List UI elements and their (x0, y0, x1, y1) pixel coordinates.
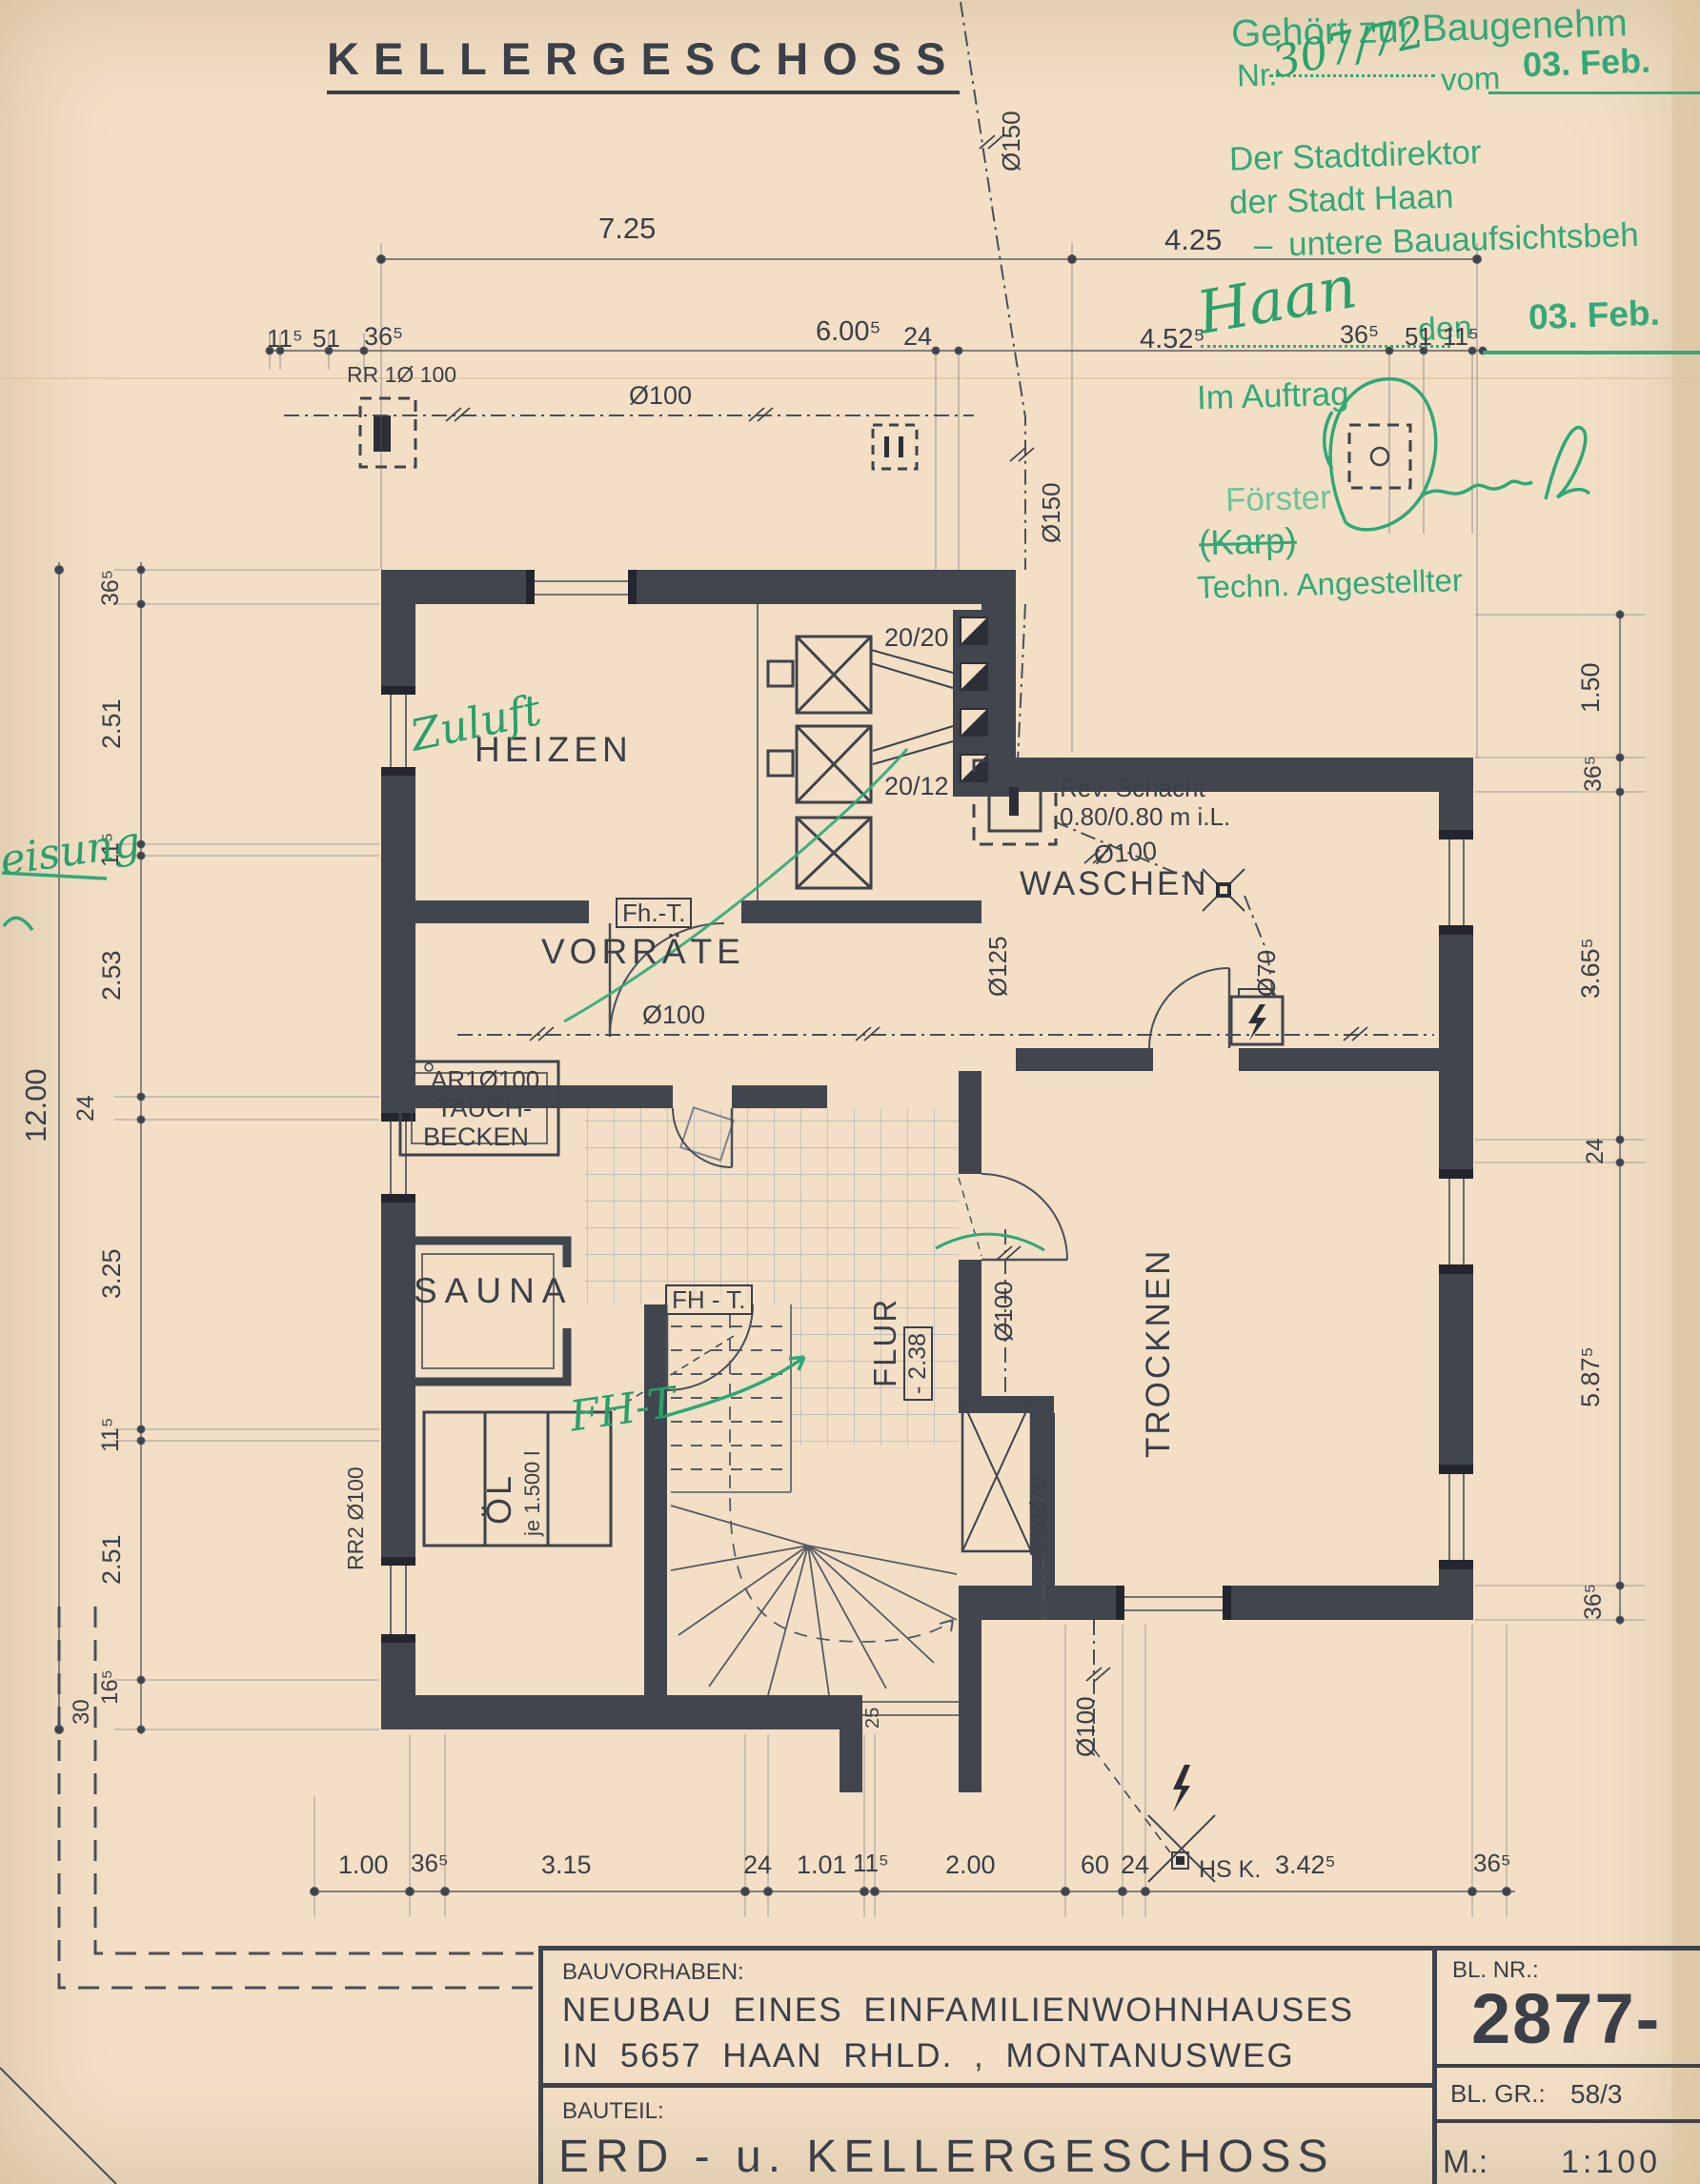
label-d150-top: Ø150 (999, 111, 1023, 172)
label-d150-mid: Ø150 (1039, 482, 1063, 543)
page-title: KELLERGESCHOSS (327, 36, 960, 94)
door-waschen (1149, 968, 1229, 1048)
stamp-authority1: Der Stadtdirektor (1229, 135, 1482, 175)
stamp-date2-underline (1483, 351, 1700, 354)
hsk-symbol (1094, 1749, 1215, 1882)
signature (1325, 379, 1589, 530)
dim-left-0: 36⁵ (99, 570, 123, 606)
flur-level-badge: - 2.38 (903, 1326, 933, 1401)
dim-top2-5: 4.52⁵ (1140, 326, 1204, 354)
dim-left-9: 30 (71, 1699, 93, 1725)
mid-dashed-box (873, 425, 917, 469)
room-label-sauna: SAUNA (414, 1273, 573, 1308)
dim-top2-8: 11⁵ (1443, 324, 1479, 349)
titleblock-border-left (538, 1946, 543, 2184)
dim-left-7: 2.51 (99, 1534, 125, 1585)
dim-bottom-9: 3.42⁵ (1275, 1852, 1336, 1878)
dim-right-1: 36⁵ (1582, 756, 1606, 792)
stamp-name: Förster (1225, 480, 1332, 516)
dim-top2-2: 36⁵ (364, 324, 403, 350)
titleblock-bauvorhaben-label: BAUVORHABEN: (562, 1961, 744, 1984)
label-rr2: RR2 Ø100 (345, 1466, 367, 1570)
dim-bottom-2: 3.15 (541, 1852, 592, 1878)
flue-2 (961, 663, 987, 690)
window-right-2 (1439, 1169, 1473, 1274)
dim-top2-3: 6.00⁵ (816, 318, 880, 346)
dim-right-3: 24 (1584, 1138, 1608, 1164)
label-d100-top: Ø100 (629, 383, 692, 409)
label-25: 25 (863, 1708, 882, 1729)
dim-bottom-8: 24 (1121, 1852, 1149, 1878)
room-label-trocknen: TROCKNEN (1142, 1248, 1175, 1458)
dim-top2-0: 11⁵ (267, 326, 303, 351)
stamp-vom: vom (1441, 62, 1501, 95)
titleblock-blgr-value: 58/3 (1570, 2081, 1623, 2108)
room-label-oel: ÖL (482, 1473, 516, 1525)
titleblock-blnr-value: 2877- (1471, 1984, 1661, 2054)
dim-left-5: 3.25 (99, 1248, 125, 1299)
stamp-name-struck: (Karp) (1199, 523, 1298, 561)
oil-tanks (424, 1336, 734, 1546)
room-label-vorraete: VORRÄTE (541, 934, 745, 969)
dim-bottom-10: 36⁵ (1473, 1850, 1511, 1875)
room-label-flur: FLUR (869, 1298, 901, 1387)
window-left-2 (381, 1113, 415, 1203)
titleblock-scale-label: M.: (1443, 2146, 1487, 2178)
titleblock-project-line1: NEUBAU EINES EINFAMILIENWOHNHAUSES (562, 1993, 1354, 2027)
titleblock-project-line2: IN 5657 HAAN RHLD. , MONTANUSWEG (562, 2039, 1295, 2073)
door-trocknen (959, 1174, 1067, 1260)
dim-right-5: 36⁵ (1582, 1584, 1606, 1620)
label-d100-bottom: Ø100 (1073, 1696, 1098, 1757)
dim-top2-6: 36⁵ (1340, 322, 1379, 348)
door-label-fht-2: FH - T. (665, 1284, 753, 1315)
dim-top2-1: 51 (313, 326, 340, 351)
dim-bottom-7: 60 (1081, 1852, 1109, 1878)
titleblock-bauteil-value: ERD - u. KELLERGESCHOSS (558, 2134, 1335, 2180)
stamp-nr-underline (1269, 74, 1435, 77)
label-d125: Ø125 (985, 936, 1010, 997)
dim-left-total: 12.00 (21, 1068, 51, 1143)
label-d100-stairs: Ø100 (991, 1281, 1016, 1342)
flue-3 (961, 709, 987, 736)
window-right-1 (1439, 830, 1473, 935)
dim-right-0: 1.50 (1578, 662, 1604, 713)
stamp-authority2: der Stadt Haan (1229, 180, 1454, 220)
rr1-dashed-box (360, 398, 415, 467)
titleblock-blgr-label: BL. GR.: (1450, 2081, 1546, 2106)
dim-right-2: 3.65⁵ (1578, 938, 1604, 999)
dim-right-4: 5.87⁵ (1578, 1346, 1604, 1407)
label-hsk: HS K. (1199, 1858, 1261, 1882)
label-rev-schacht-1: Rev. Schacht (1060, 776, 1205, 800)
right-dashed-box (1349, 425, 1410, 488)
lightning-icon (1173, 1765, 1190, 1812)
stamp-date1: 03. Feb. (1522, 44, 1650, 83)
dim-left-6: 11⁵ (99, 1418, 123, 1452)
titleblock-divider-right-1 (1432, 2064, 1700, 2068)
label-ar2: AR2Ø70 (1027, 1477, 1049, 1561)
excavation-dashed-lines (0, 1607, 534, 2184)
dim-top-725: 7.25 (598, 213, 656, 243)
dim-top2-7: 51 (1405, 324, 1432, 349)
flue-1 (961, 617, 987, 644)
blueprint-sheet: KELLERGESCHOSS Gehört zur Baugenehm Nr. … (0, 0, 1700, 2184)
titleblock-divider-left (538, 2083, 1432, 2088)
window-top (526, 570, 637, 604)
door-stairs (667, 1304, 753, 1390)
dim-top2-4: 24 (903, 324, 932, 350)
titleblock-border-top (538, 1946, 1700, 1951)
room-label-tauchbecken-1: TAUCH- (436, 1096, 532, 1122)
label-ar1: AR1Ø100 (431, 1067, 539, 1092)
shaft-cross (962, 1401, 1031, 1551)
washing-machine-symbol (1231, 989, 1283, 1044)
dimension-lines (55, 243, 1646, 1917)
label-flue-2020: 20/20 (884, 625, 949, 651)
corner-fold-line (0, 2068, 116, 2184)
sauna-walls (409, 1241, 572, 1382)
room-label-oel-sub: je 1.500 l (522, 1451, 543, 1536)
stamp-date2: 03. Feb. (1528, 295, 1660, 335)
window-right-3 (1439, 1465, 1473, 1569)
label-flue-2012: 20/12 (884, 774, 949, 799)
dim-left-8: 16⁵ (99, 1669, 122, 1705)
titleblock-bauteil-label: BAUTEIL: (562, 2100, 664, 2123)
titleblock-scale-value: 1:100 (1561, 2146, 1661, 2178)
label-rr1: RR 1Ø 100 (347, 364, 456, 386)
stamp-dash: – (1254, 229, 1272, 262)
dim-bottom-5: 11⁵ (853, 1850, 889, 1875)
label-d100-vorraete: Ø100 (642, 1002, 705, 1028)
stamp-role: Techn. Angestellter (1197, 564, 1464, 603)
dim-left-1: 2.51 (99, 698, 125, 749)
dim-bottom-6: 2.00 (945, 1852, 996, 1878)
dim-left-4: 24 (74, 1095, 98, 1122)
window-bottom-right (1116, 1586, 1231, 1620)
stamp-date1-underline (1488, 91, 1700, 94)
dim-bottom-0: 1.00 (338, 1852, 389, 1878)
room-label-tauchbecken-2: BECKEN (423, 1124, 529, 1150)
label-d100-waschen: Ø100 (1093, 839, 1158, 869)
label-d70: Ø70 (1254, 950, 1279, 997)
label-rev-schacht-2: 0.80/0.80 m i.L. (1060, 804, 1230, 829)
stamp-im-auftrag: Im Auftrag (1197, 377, 1349, 415)
dim-top-425: 4.25 (1164, 225, 1222, 254)
dim-bottom-4: 1.01 (797, 1852, 847, 1878)
dim-left-3: 2.53 (99, 950, 125, 1001)
dim-bottom-3: 24 (743, 1852, 772, 1878)
room-label-waschen: WASCHEN (1020, 867, 1209, 900)
dim-bottom-1: 36⁵ (411, 1850, 449, 1875)
door-label-fht-1: Fh.-T. (616, 898, 692, 928)
titleblock-divider-right-2 (1432, 2119, 1700, 2123)
window-left-3 (381, 1557, 415, 1643)
